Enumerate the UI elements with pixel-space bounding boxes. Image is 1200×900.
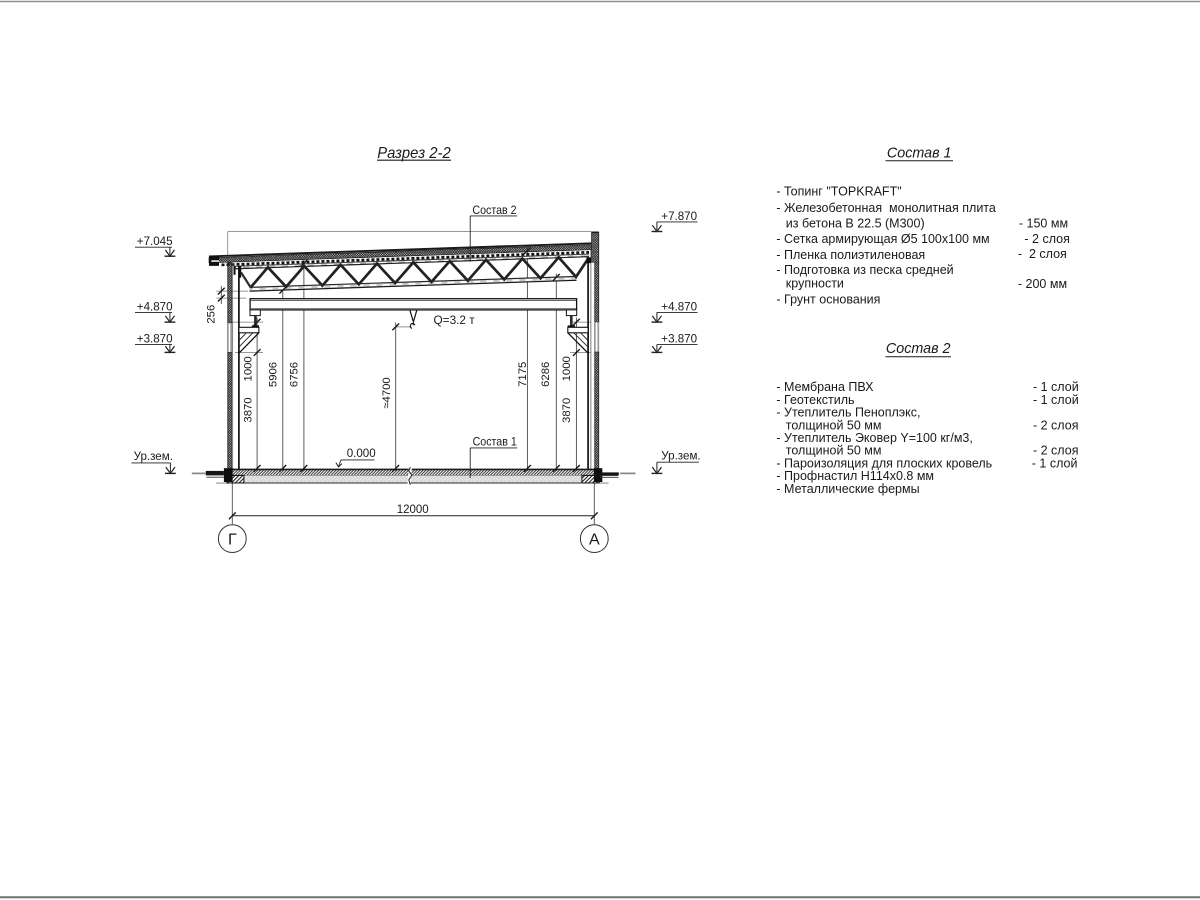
svg-text:+4.870: +4.870 [137, 301, 173, 314]
svg-text:1000: 1000 [243, 356, 255, 381]
svg-text:6286: 6286 [540, 362, 552, 387]
svg-text:- 150 мм: - 150 мм [1019, 216, 1068, 230]
svg-text:7175: 7175 [517, 362, 529, 387]
svg-text:+7.870: +7.870 [661, 210, 697, 223]
svg-text:- Пленка полиэтиленовая: - Пленка полиэтиленовая [776, 248, 925, 262]
svg-text:- 1 слой: - 1 слой [1032, 456, 1078, 470]
svg-text:12000: 12000 [397, 504, 429, 516]
svg-text:+7.045: +7.045 [137, 235, 173, 248]
svg-text:Ур.зем.: Ур.зем. [134, 450, 173, 463]
svg-text:1000: 1000 [561, 356, 573, 381]
svg-text:+4.870: +4.870 [661, 301, 697, 314]
svg-text:- 2 слоя: - 2 слоя [1018, 247, 1067, 261]
svg-text:5906: 5906 [268, 362, 280, 387]
svg-text:Разрез 2-2: Разрез 2-2 [377, 145, 451, 162]
svg-text:Г: Г [228, 531, 237, 548]
svg-text:256: 256 [206, 305, 218, 324]
svg-text:Состав 1: Состав 1 [887, 144, 952, 161]
svg-text:Ур.зем.: Ур.зем. [661, 449, 700, 462]
svg-text:3870: 3870 [561, 398, 573, 423]
svg-text:+3.870: +3.870 [661, 333, 697, 346]
svg-text:из бетона В 22.5 (М300): из бетона В 22.5 (М300) [786, 217, 925, 231]
svg-text:- Железобетонная монолитная п: - Железобетонная монолитная плита [776, 201, 995, 215]
svg-text:- 2 слоя: - 2 слоя [1033, 418, 1078, 432]
svg-text:≈4700: ≈4700 [381, 377, 393, 408]
svg-text:- 200 мм: - 200 мм [1018, 277, 1067, 291]
svg-text:6756: 6756 [289, 362, 301, 387]
svg-text:- Металлические фермы: - Металлические фермы [776, 482, 919, 496]
svg-text:- 1 слой: - 1 слой [1033, 393, 1079, 407]
svg-text:- Подготовка из песка средней: - Подготовка из песка средней [776, 263, 953, 277]
svg-text:крупности: крупности [786, 277, 844, 291]
svg-text:Состав 1: Состав 1 [473, 434, 517, 448]
svg-text:- Грунт основания: - Грунт основания [776, 293, 880, 307]
svg-text:Состав 2: Состав 2 [886, 340, 951, 357]
svg-text:0.000: 0.000 [347, 447, 376, 460]
svg-text:А: А [589, 531, 600, 548]
svg-text:+3.870: +3.870 [137, 333, 173, 346]
svg-text:- Сетка армирующая Ø5 100х100: - Сетка армирующая Ø5 100х100 мм [776, 232, 989, 246]
svg-text:Состав 2: Состав 2 [472, 203, 516, 217]
svg-text:3870: 3870 [243, 397, 255, 422]
svg-text:- 2 слоя: - 2 слоя [1024, 232, 1069, 246]
svg-text:Q=3.2 т: Q=3.2 т [434, 313, 476, 327]
svg-text:- Топинг "TOPKRAFT": - Топинг "TOPKRAFT" [776, 185, 901, 199]
